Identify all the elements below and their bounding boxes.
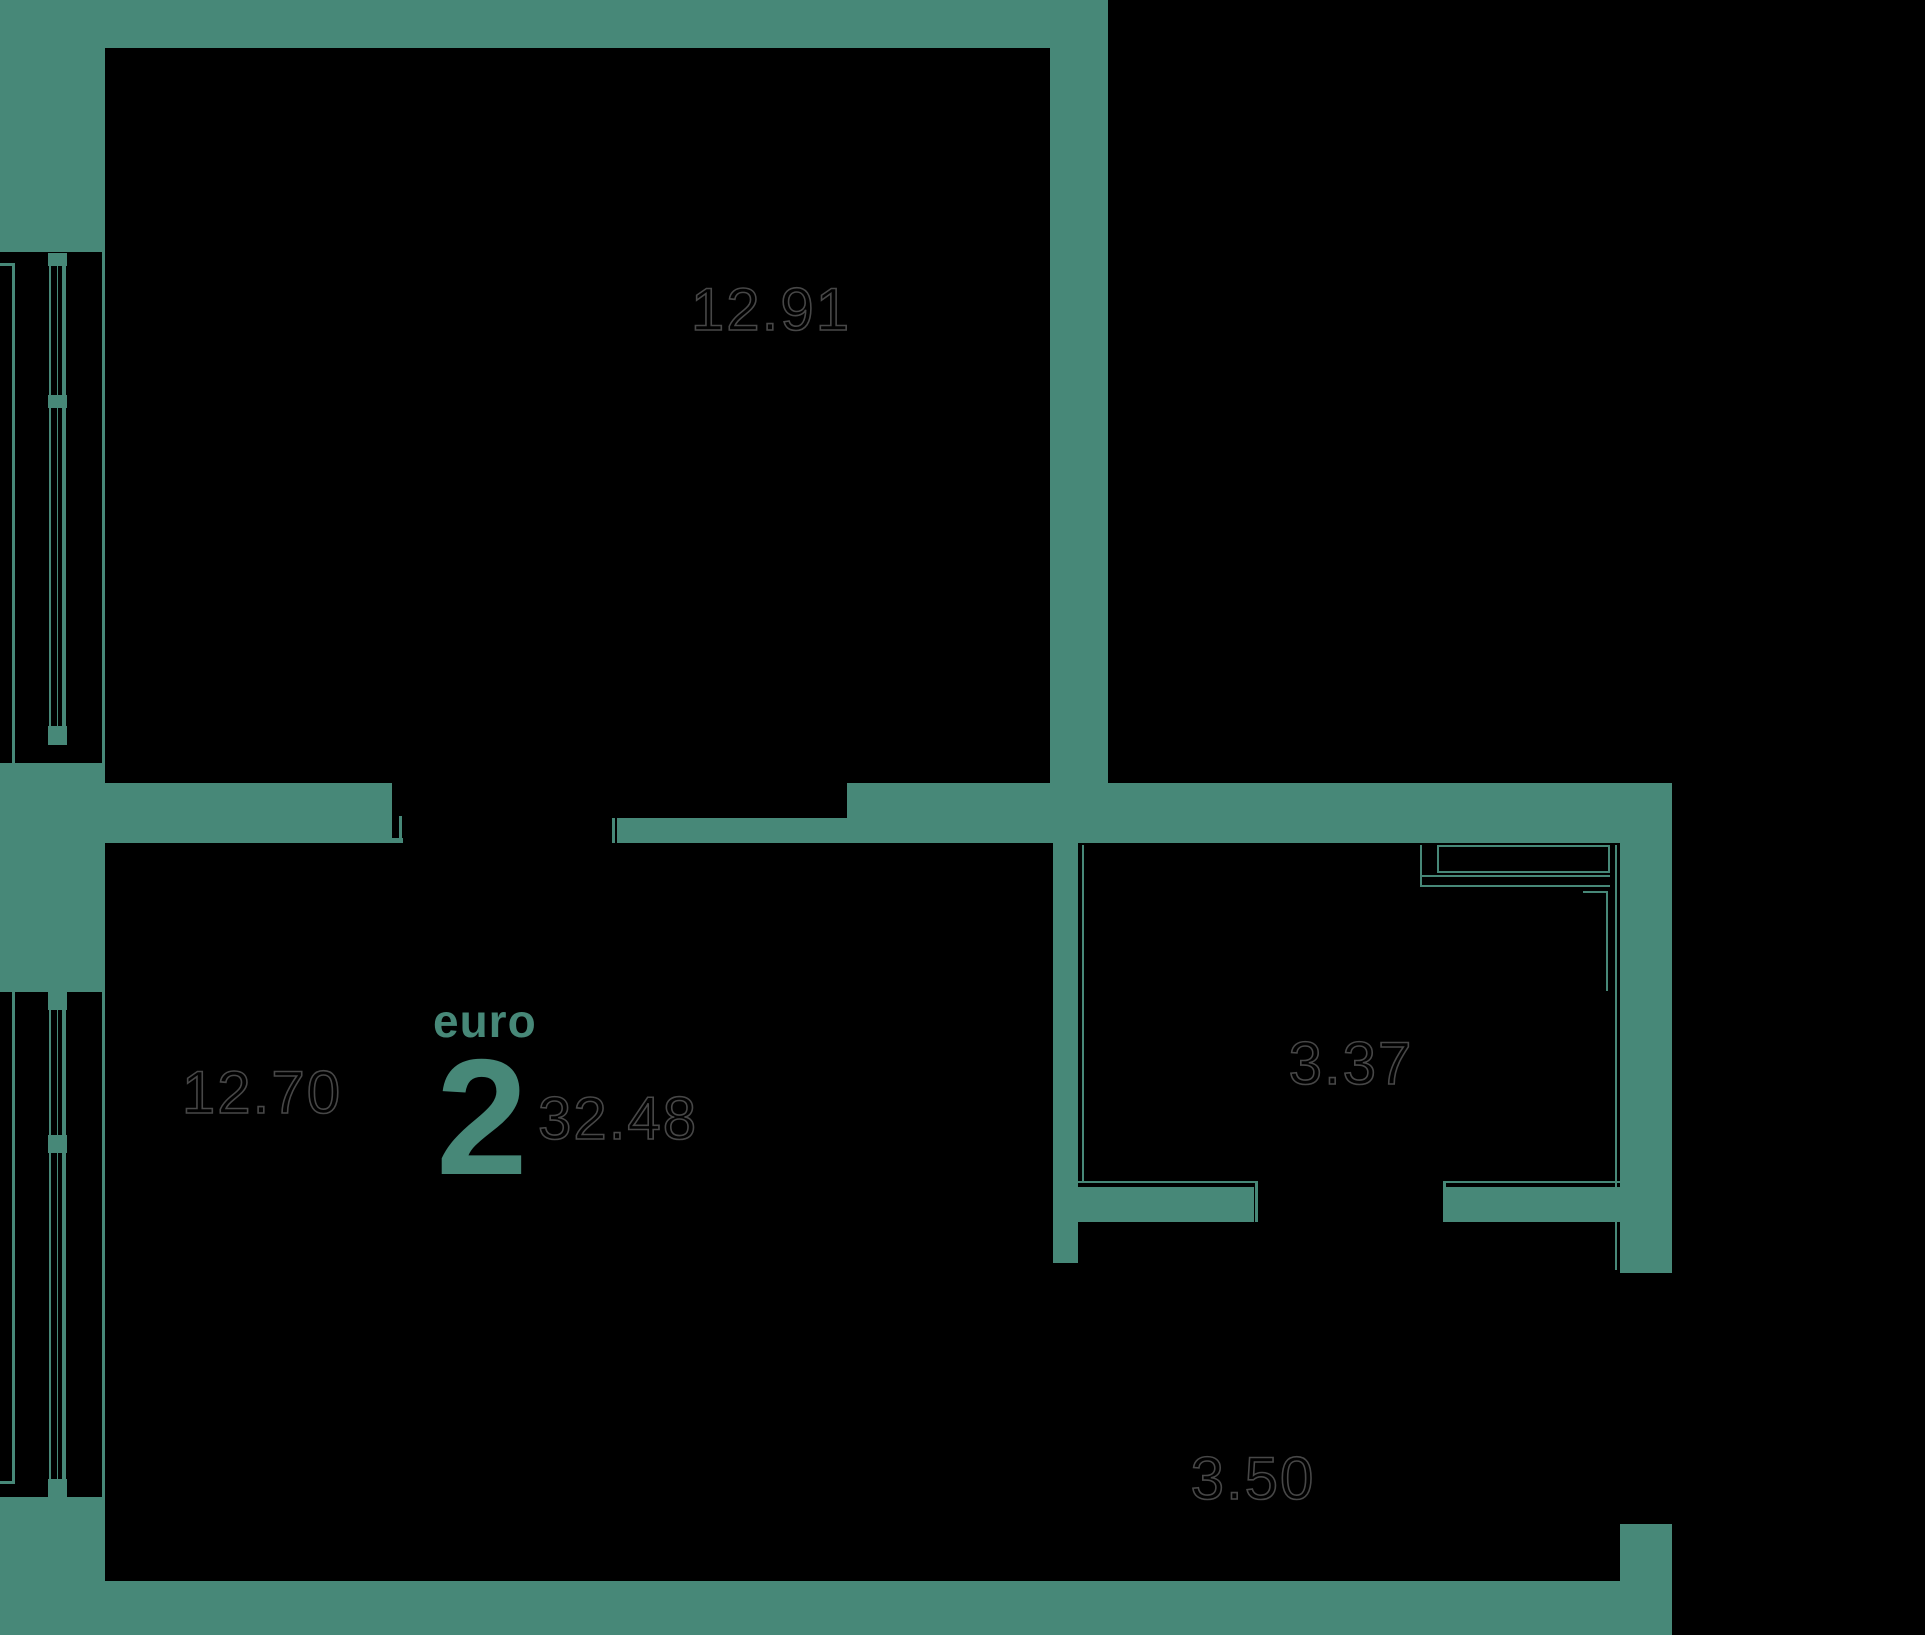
bathroom-door-jamb-right [1443,1183,1446,1222]
bathroom-door-jamb-left [1255,1183,1258,1222]
facade-line-tick-bottom [0,1481,13,1484]
window-upper-cap-middle [48,395,67,408]
room-area-bottom-left: 12.70 [112,1063,412,1123]
wall-bottom-band [0,1581,1620,1635]
door-jamb-left [399,816,402,843]
bathroom-door-lintel-left [1078,1181,1258,1183]
duct-corner-v [1606,891,1608,991]
hall-pier-face-line [1082,845,1084,1183]
unit-total-area: 32.48 [538,1089,698,1149]
window-lower-inner-face-line [102,992,105,1497]
window-upper-cap-bottom [48,726,67,745]
facade-line-tick-top [0,263,13,266]
facade-line [12,263,15,1484]
duct-line-1 [1422,875,1610,877]
wall-bathroom-band-left [1078,1187,1254,1222]
room-area-top-left: 12.91 [621,280,921,340]
room-area-hallway: 3.50 [1103,1449,1403,1509]
wall-right-lower [1620,1527,1672,1635]
window-lower-mullion [57,992,58,1497]
wall-door-threshold [617,818,847,843]
entrance-door-tick-top [1620,1270,1672,1273]
entrance-door-tick-bottom [1620,1524,1672,1527]
door-jamb-right [612,818,615,843]
duct-left-line [1420,845,1422,887]
wall-left-middle-pier [0,763,105,992]
window-lower-cap-bottom [48,1479,67,1497]
unit-rooms-count: 2 [436,1035,528,1200]
duct-corner-h [1583,891,1608,893]
window-upper-mullion [57,253,58,745]
window-lower-cap-middle [48,1135,67,1153]
wall-bathroom-band-right [1446,1187,1620,1222]
right-wall-face-line [1615,845,1617,1270]
wall-middle-band-right [847,783,1672,843]
wall-right-upper [1620,843,1672,1270]
wall-left-top-pier [0,0,105,252]
duct-outline [1437,845,1610,873]
wall-right-bar-top [1050,0,1108,790]
window-lower-cap-top [48,992,67,1010]
wall-hall-pier [1053,843,1078,1263]
window-upper-cap-top [48,253,67,266]
duct-line-2 [1422,885,1610,887]
window-lower-frame [49,992,66,1497]
room-area-bathroom: 3.37 [1201,1034,1501,1094]
wall-top-band [0,0,1108,48]
window-upper-frame [49,253,66,745]
window-upper-inner-face-line [102,252,105,763]
floor-plan: 12.91 12.70 3.37 3.50 euro 2 32.48 [0,0,1925,1635]
bathroom-door-lintel-right [1443,1181,1620,1183]
wall-middle-band-left [105,783,392,843]
